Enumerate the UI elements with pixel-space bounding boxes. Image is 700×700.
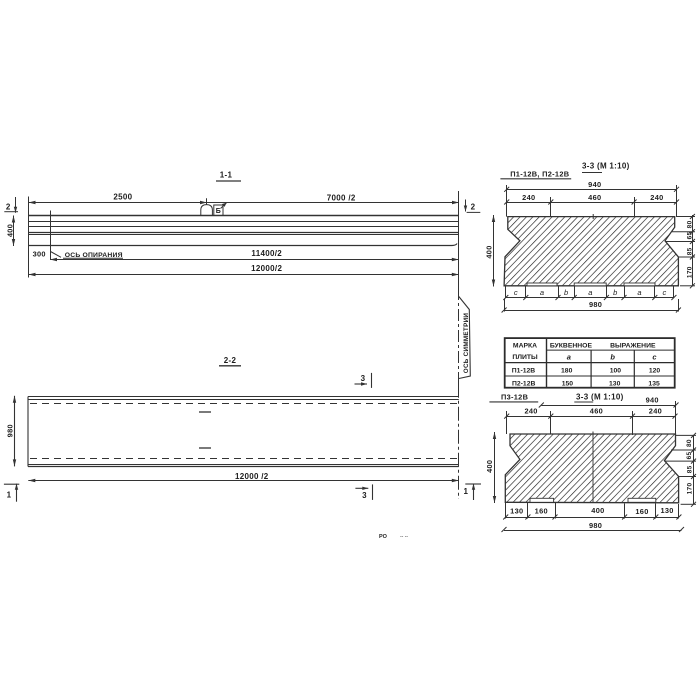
svg-text:135: 135 [648,381,660,388]
svg-text:940: 940 [646,396,659,405]
svg-text:a: a [637,288,641,297]
svg-text:ПЛИТЫ: ПЛИТЫ [512,354,538,361]
svg-text:3: 3 [361,374,366,383]
svg-text:П2-12В: П2-12В [512,381,535,388]
svg-text:3-3 (М 1:10): 3-3 (М 1:10) [582,162,630,171]
svg-text:РО: РО [379,534,388,540]
svg-text:2-2: 2-2 [224,356,237,365]
svg-text:2: 2 [471,203,476,212]
svg-text:1: 1 [464,487,469,496]
svg-text:100: 100 [610,368,622,375]
svg-text:П1-12В: П1-12В [512,368,535,375]
svg-text:240: 240 [524,407,537,416]
svg-text:980: 980 [589,300,602,309]
svg-text:7000 /2: 7000 /2 [327,194,356,203]
svg-text:b: b [564,288,568,297]
svg-text:120: 120 [649,368,661,375]
svg-text:a: a [540,288,544,297]
svg-text:12000 /2: 12000 /2 [235,472,269,481]
svg-text:160: 160 [535,507,548,516]
svg-text:85: 85 [687,465,694,473]
svg-text:130: 130 [660,506,673,515]
svg-text:3: 3 [362,491,367,500]
svg-text:300: 300 [33,250,46,259]
svg-text:3-3 (М 1:10): 3-3 (М 1:10) [576,393,624,402]
svg-text:130: 130 [609,381,621,388]
svg-text:240: 240 [522,193,535,202]
svg-text:400: 400 [5,224,14,237]
svg-text:65: 65 [686,232,693,240]
svg-text:65: 65 [686,452,693,460]
svg-text:c: c [663,288,667,297]
svg-text:160: 160 [635,507,648,516]
svg-text:240: 240 [650,193,663,202]
svg-text:Б: Б [216,208,221,215]
svg-text:400: 400 [485,245,494,258]
svg-text:80: 80 [686,220,693,228]
svg-text:1: 1 [7,491,12,500]
svg-text:2: 2 [6,203,11,212]
svg-text:80: 80 [686,439,693,447]
svg-text:БУКВЕННОЕ: БУКВЕННОЕ [550,343,593,350]
svg-text:1-1: 1-1 [220,171,233,180]
svg-text:460: 460 [588,193,601,202]
svg-text:-- --: -- -- [400,534,408,540]
svg-text:b: b [610,353,615,362]
svg-text:170: 170 [686,266,693,278]
svg-text:c: c [652,353,657,362]
svg-text:11400/2: 11400/2 [251,249,282,258]
svg-text:980: 980 [5,424,14,437]
svg-text:МАРКА: МАРКА [513,343,537,350]
svg-text:2500: 2500 [113,193,132,202]
svg-text:ОСЬ СИММЕТРИИ: ОСЬ СИММЕТРИИ [463,313,470,374]
svg-text:П1-12В, П2-12В: П1-12В, П2-12В [510,170,569,179]
svg-text:П3-12В: П3-12В [501,392,528,401]
svg-text:a: a [588,288,592,297]
svg-text:460: 460 [590,407,603,416]
svg-text:12000/2: 12000/2 [251,264,282,273]
svg-text:ВЫРАЖЕНИЕ: ВЫРАЖЕНИЕ [610,343,656,350]
svg-text:400: 400 [485,460,494,473]
svg-text:b: b [613,288,617,297]
svg-text:150: 150 [562,381,574,388]
svg-text:130: 130 [510,507,523,516]
svg-text:a: a [567,353,571,362]
svg-text:180: 180 [561,368,573,375]
svg-text:c: c [514,288,518,297]
svg-text:940: 940 [588,180,601,189]
svg-text:170: 170 [686,483,693,495]
svg-text:980: 980 [589,521,602,530]
svg-text:85: 85 [686,247,693,255]
svg-text:240: 240 [649,407,662,416]
svg-text:400: 400 [591,506,604,515]
